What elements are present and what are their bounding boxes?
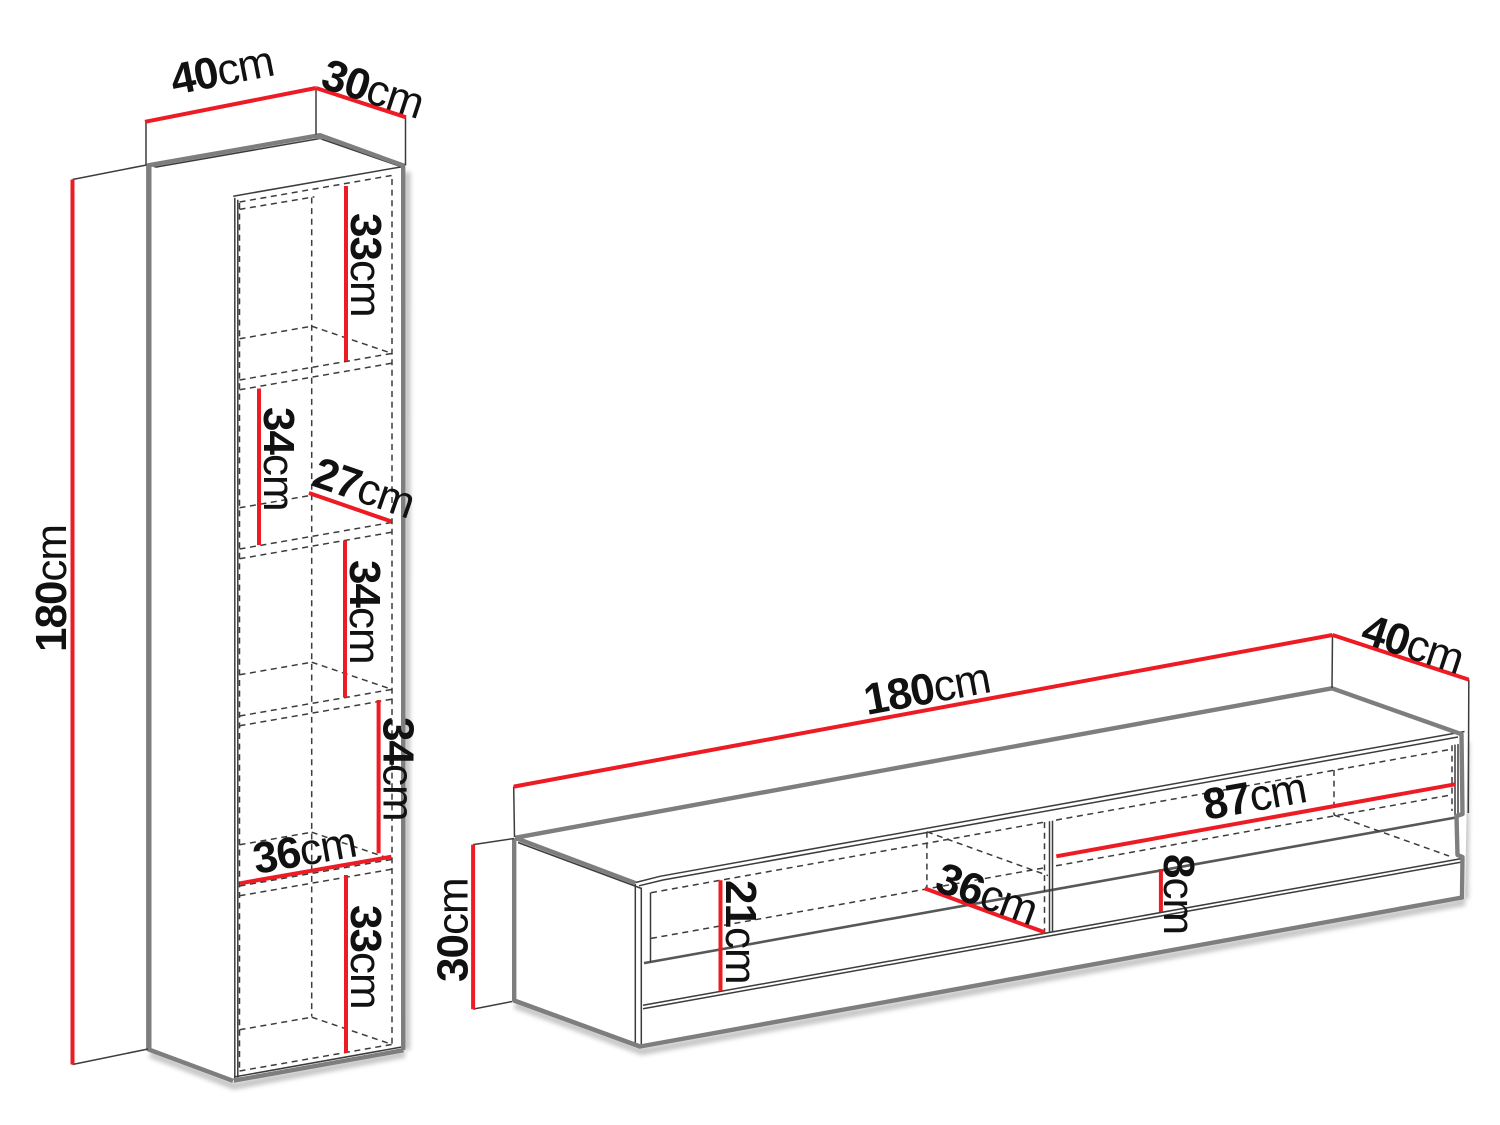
- svg-text:34cm: 34cm: [374, 717, 423, 821]
- svg-text:33cm: 33cm: [341, 213, 390, 317]
- svg-text:33cm: 33cm: [341, 905, 390, 1009]
- svg-text:8cm: 8cm: [1154, 854, 1203, 934]
- svg-text:21cm: 21cm: [716, 880, 765, 984]
- svg-text:30cm: 30cm: [429, 878, 478, 982]
- svg-text:180cm: 180cm: [27, 525, 76, 652]
- svg-text:34cm: 34cm: [254, 407, 303, 511]
- svg-text:34cm: 34cm: [340, 560, 389, 664]
